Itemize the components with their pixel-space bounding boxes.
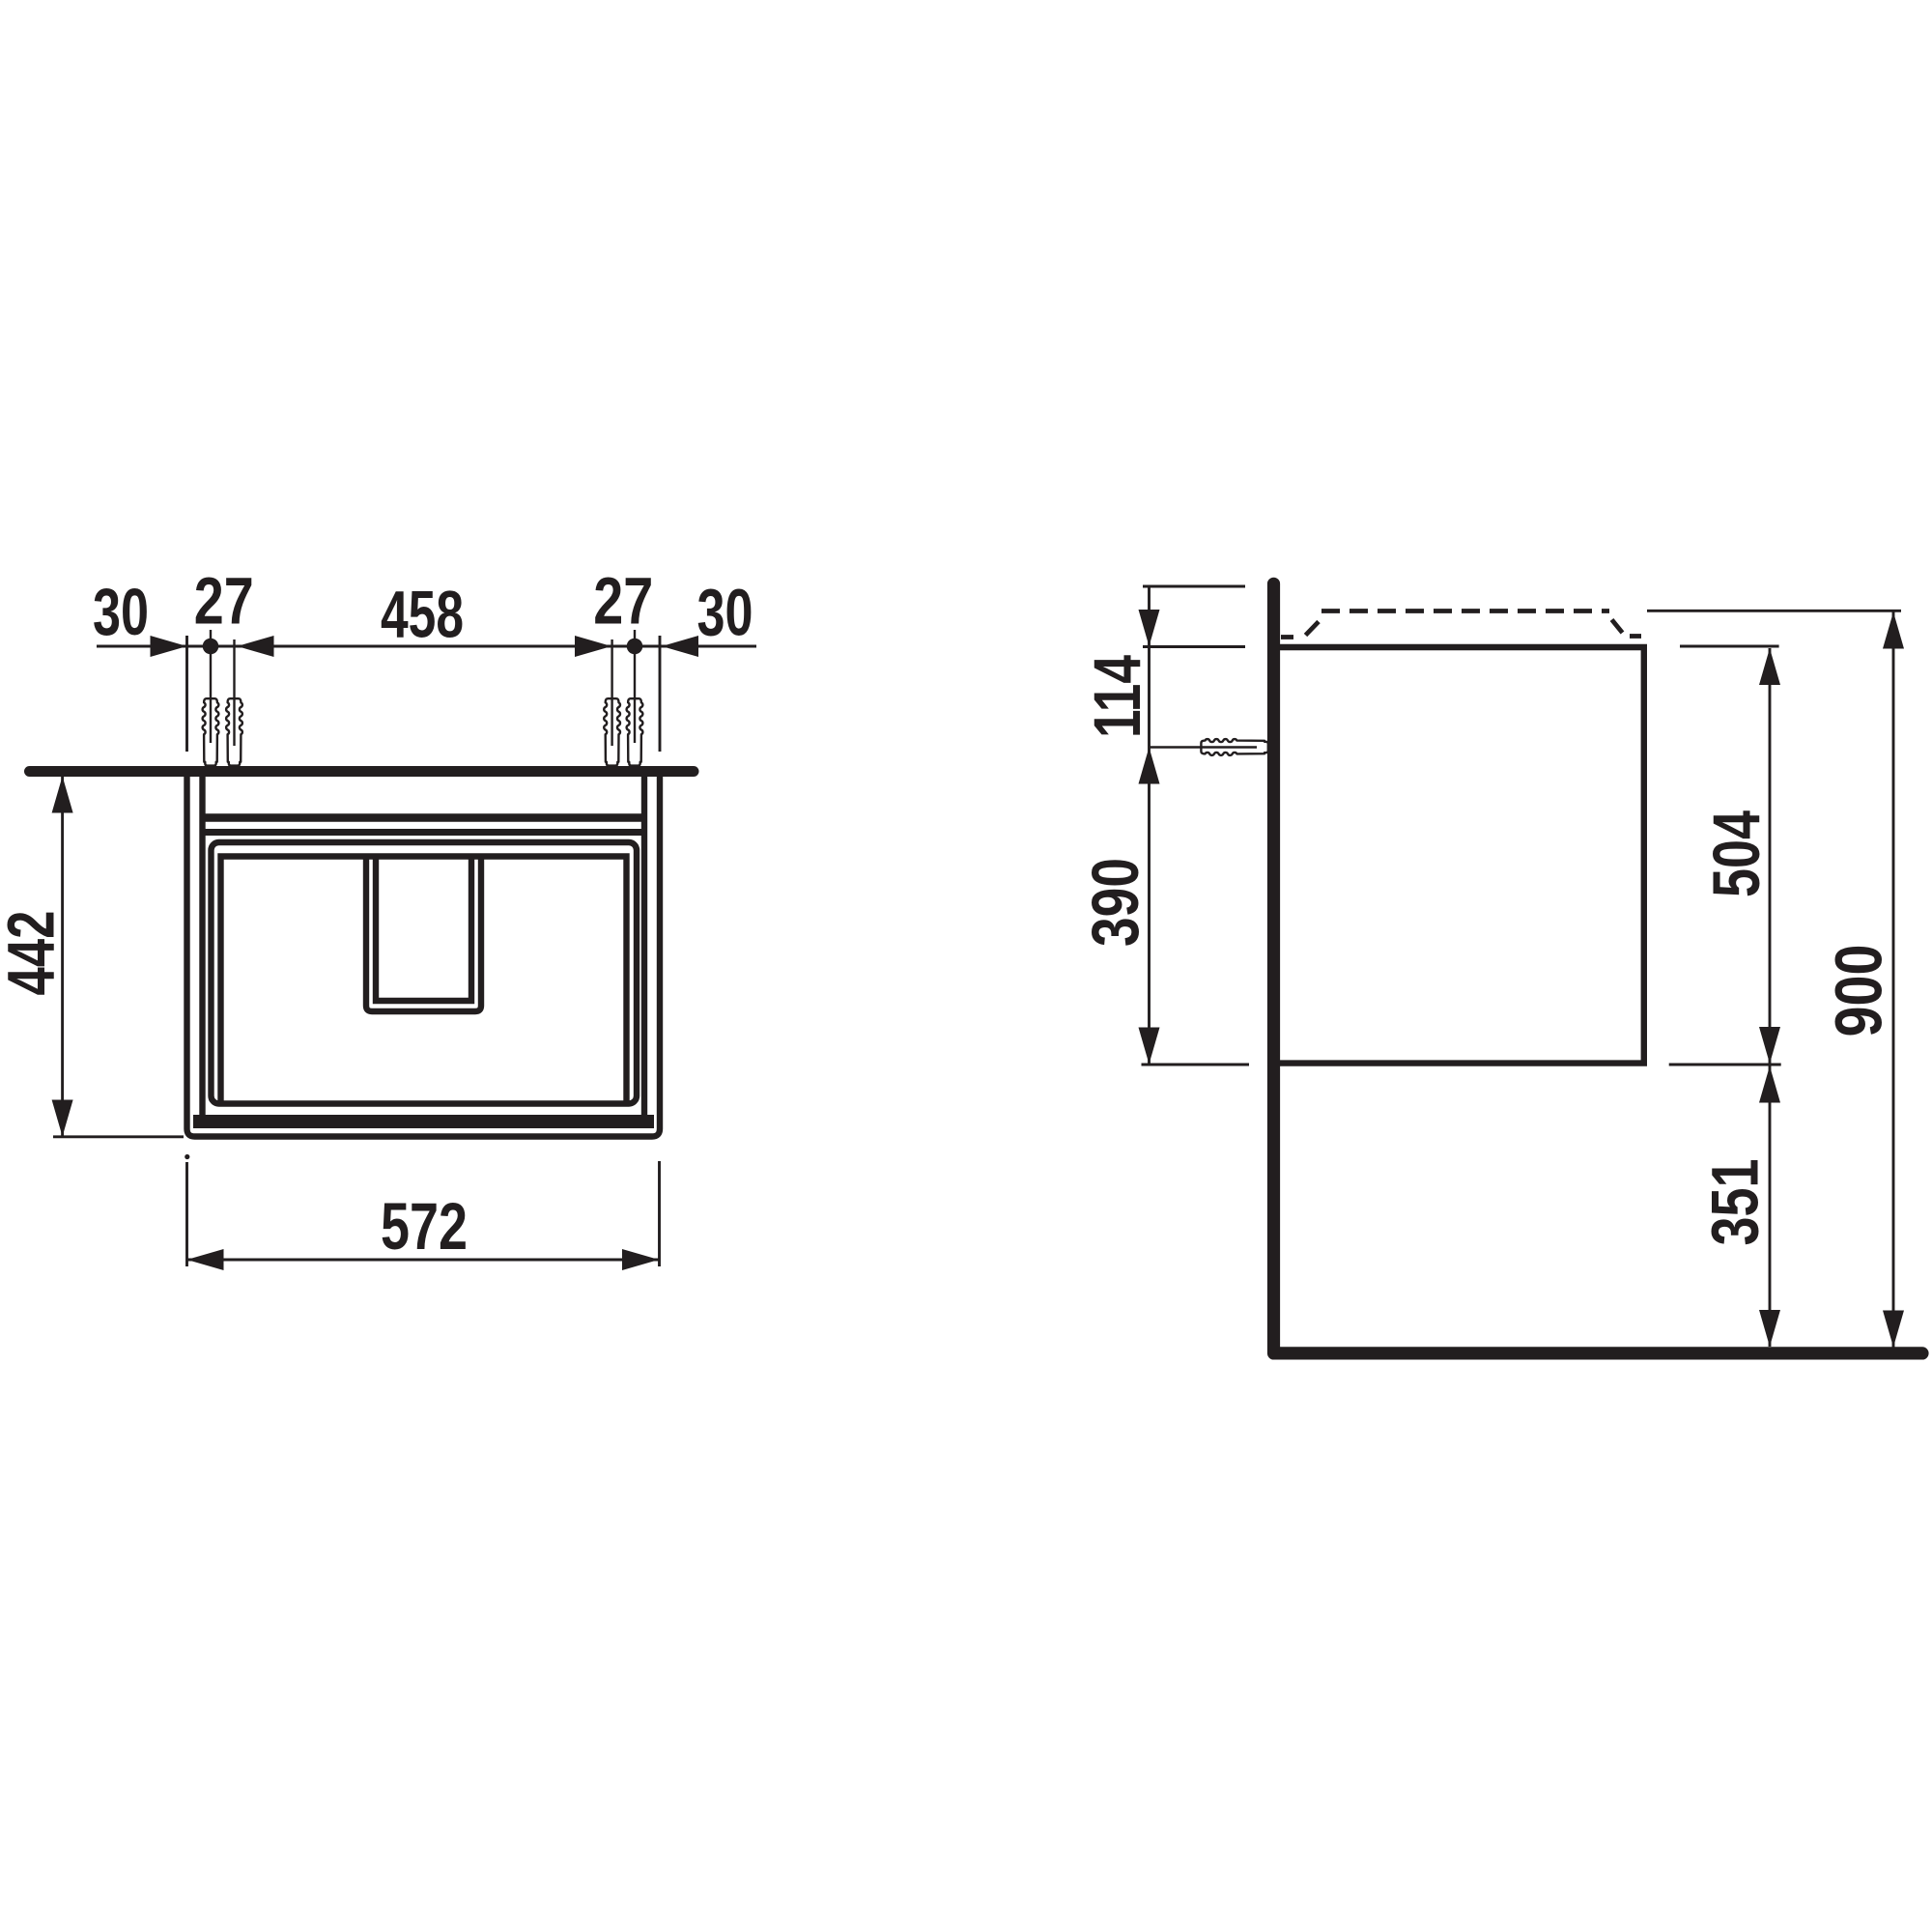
svg-text:458: 458: [381, 578, 464, 652]
svg-text:27: 27: [194, 563, 254, 638]
svg-text:351: 351: [1698, 1159, 1773, 1246]
svg-text:572: 572: [381, 1189, 468, 1264]
svg-text:30: 30: [93, 575, 149, 649]
svg-text:114: 114: [1080, 655, 1154, 738]
svg-text:504: 504: [1699, 810, 1774, 897]
svg-text:30: 30: [697, 576, 753, 650]
svg-text:390: 390: [1078, 858, 1152, 947]
svg-text:27: 27: [593, 563, 653, 638]
svg-text:900: 900: [1822, 945, 1896, 1037]
svg-text:442: 442: [0, 911, 69, 996]
